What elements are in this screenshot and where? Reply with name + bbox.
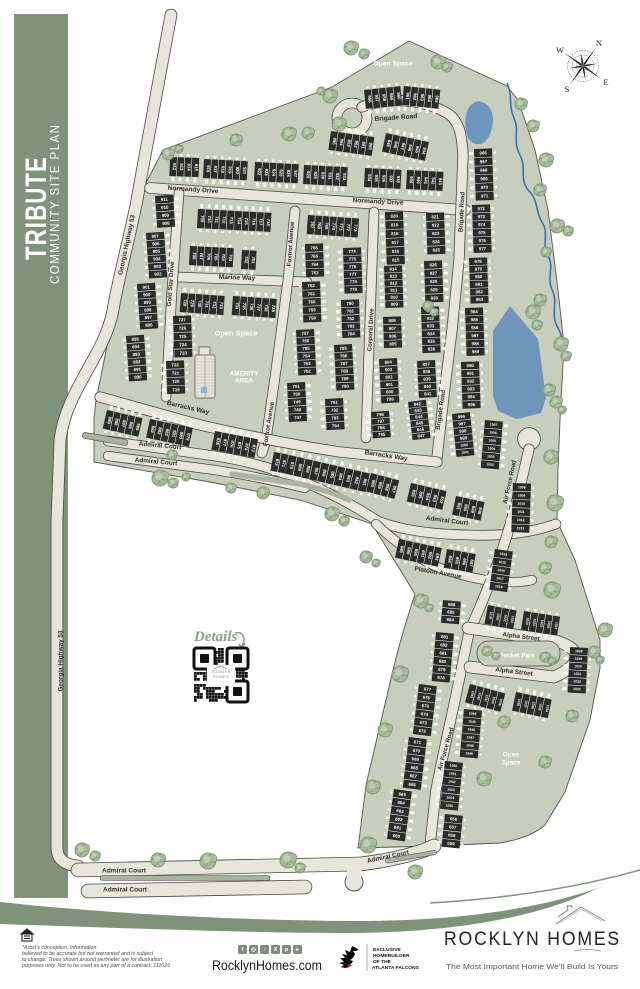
svg-text:994: 994 [467,394,475,399]
svg-text:HOMEBUILDER: HOMEBUILDER [373,953,410,959]
svg-text:976: 976 [479,238,487,243]
svg-text:979: 979 [475,266,483,271]
svg-text:928: 928 [306,171,311,179]
svg-text:973: 973 [478,214,486,219]
svg-text:836: 836 [428,346,436,351]
svg-text:1009: 1009 [518,493,526,497]
svg-text:927: 927 [293,170,298,178]
svg-text:674: 674 [420,711,428,717]
svg-text:730: 730 [197,300,203,308]
svg-text:N: N [596,38,602,48]
svg-text:835: 835 [427,339,435,344]
svg-text:891: 891 [134,367,142,373]
svg-text:929: 929 [313,171,318,179]
svg-text:816: 816 [392,249,400,254]
svg-text:717: 717 [258,218,263,226]
svg-text:725: 725 [179,334,187,339]
svg-text:766: 766 [310,245,318,250]
svg-text:837: 837 [422,362,430,367]
svg-text:670: 670 [412,748,420,754]
svg-text:936: 936 [381,175,386,183]
svg-text:962: 962 [412,93,418,101]
svg-text:965: 965 [434,95,440,103]
svg-text:733: 733 [219,302,225,310]
svg-text:1048: 1048 [466,743,474,748]
svg-text:676: 676 [422,695,430,701]
svg-text:783: 783 [347,324,355,329]
svg-text:1031: 1031 [574,672,582,676]
svg-text:753: 753 [303,361,311,366]
svg-text:722: 722 [171,362,179,367]
svg-text:932: 932 [335,173,340,181]
svg-text:ROCKLYN HOMES: ROCKLYN HOMES [444,928,621,950]
svg-text:894: 894 [132,344,140,350]
svg-text:923: 923 [264,168,269,176]
svg-text:777: 777 [349,272,357,277]
svg-text:Details: Details [193,629,237,645]
svg-text:957: 957 [374,94,380,102]
svg-text:803: 803 [385,367,393,372]
svg-text:906: 906 [152,241,160,247]
svg-text:893: 893 [132,352,140,358]
svg-text:977: 977 [479,246,487,251]
svg-text:747: 747 [294,415,302,420]
svg-text:963: 963 [419,94,425,102]
svg-text:813: 813 [390,274,398,279]
svg-text:782: 782 [347,316,355,321]
svg-text:673: 673 [419,720,427,726]
svg-text:807: 807 [389,326,397,331]
svg-text:Open Space: Open Space [215,329,258,338]
svg-text:1000: 1000 [460,443,468,448]
svg-text:809: 809 [391,302,399,307]
svg-text:770: 770 [331,223,337,231]
svg-text:971: 971 [481,193,489,198]
svg-text:905: 905 [152,249,160,255]
svg-text:W: W [556,45,564,55]
svg-text:986: 986 [471,325,479,330]
svg-text:987: 987 [471,333,479,338]
svg-text:726: 726 [179,326,187,331]
svg-text:801: 801 [386,382,394,387]
svg-text:1053: 1053 [447,787,455,792]
svg-text:AMENITY: AMENITY [230,371,259,378]
svg-text:847: 847 [417,433,425,439]
svg-text:658: 658 [448,832,456,838]
svg-text:969: 969 [480,176,488,181]
svg-text:924: 924 [271,169,276,177]
svg-text:1002: 1002 [486,462,494,467]
svg-text:f: f [242,947,244,953]
svg-text:purposes only. Not to be used: purposes only. Not to be used as any par… [21,963,170,969]
svg-text:983: 983 [476,297,484,302]
svg-text:942: 942 [430,177,435,185]
svg-text:705: 705 [213,253,218,261]
svg-text:752: 752 [303,369,311,374]
svg-text:661: 661 [394,825,403,831]
svg-text:819: 819 [391,222,399,227]
svg-text:749: 749 [293,399,301,404]
svg-text:723: 723 [180,350,188,355]
svg-text:958: 958 [381,94,387,102]
svg-text:781: 781 [347,308,355,313]
svg-text:♪: ♪ [263,947,266,953]
svg-text:1055: 1055 [445,803,453,808]
svg-text:Admiral Court: Admiral Court [103,887,148,894]
svg-text:708: 708 [192,252,197,260]
svg-text:806: 806 [389,334,397,339]
svg-text:904: 904 [153,256,161,262]
svg-text:937: 937 [388,175,393,183]
svg-text:913: 913 [179,163,184,171]
svg-text:970: 970 [481,185,489,190]
svg-text:912: 912 [172,163,177,171]
svg-text:774: 774 [348,249,356,254]
svg-text:815: 815 [392,257,400,262]
svg-text:817: 817 [391,240,399,245]
svg-text:918: 918 [220,166,225,174]
svg-text:828: 828 [430,279,438,284]
svg-text:1003: 1003 [487,454,495,459]
svg-text:731: 731 [204,301,210,309]
svg-text:1049: 1049 [465,751,473,756]
svg-text:792: 792 [331,407,339,412]
svg-text:659: 659 [447,841,455,847]
svg-text:838: 838 [423,369,431,374]
svg-text:940: 940 [416,176,421,184]
svg-text:956: 956 [367,95,373,103]
svg-text:842: 842 [413,401,421,407]
svg-text:810: 810 [390,295,398,300]
svg-text:921: 921 [242,167,247,175]
svg-text:724: 724 [179,342,187,347]
svg-text:678: 678 [437,675,445,681]
svg-text:925: 925 [278,169,283,177]
svg-text:1012: 1012 [517,518,525,522]
svg-text:667: 667 [409,773,417,779]
svg-text:996: 996 [457,414,465,420]
svg-text:914: 914 [186,164,191,172]
svg-text:791: 791 [330,400,338,405]
svg-text:682: 682 [440,642,448,648]
svg-text:728: 728 [182,299,188,307]
svg-text:759: 759 [308,307,316,312]
svg-text:704: 704 [221,254,226,262]
svg-text:802: 802 [385,374,393,379]
svg-text:911: 911 [161,197,169,203]
svg-text:754: 754 [303,353,311,358]
svg-text:1006: 1006 [489,430,497,435]
svg-text:1047: 1047 [467,735,475,740]
svg-text:773: 773 [353,224,359,232]
svg-text:935: 935 [374,174,379,182]
svg-text:1050: 1050 [450,764,458,769]
svg-text:794: 794 [332,423,340,428]
svg-text:982: 982 [475,289,483,294]
svg-text:1032: 1032 [573,679,581,683]
svg-text:992: 992 [467,379,475,384]
svg-text:821: 821 [431,214,439,219]
svg-text:779: 779 [350,287,358,292]
svg-text:916: 916 [206,165,211,173]
svg-text:734: 734 [234,302,240,310]
svg-text:684: 684 [446,617,454,623]
svg-text:907: 907 [151,233,159,239]
svg-text:OF THE: OF THE [373,959,392,965]
svg-text:890: 890 [134,374,142,380]
svg-text:669: 669 [411,756,419,762]
svg-text:903: 903 [154,264,162,270]
svg-text:995: 995 [468,402,476,407]
svg-text:899: 899 [143,300,151,306]
svg-text:X: X [274,947,278,953]
svg-text:732: 732 [211,301,217,309]
svg-text:1044: 1044 [469,711,477,716]
svg-text:833: 833 [427,323,435,328]
svg-text:668: 668 [410,765,418,771]
svg-text:666: 666 [408,782,416,788]
svg-text:961: 961 [405,92,411,100]
svg-text:1007: 1007 [490,422,498,427]
svg-text:915: 915 [194,164,199,172]
svg-text:715: 715 [244,217,249,225]
svg-text:938: 938 [396,176,401,184]
svg-text:900: 900 [143,292,151,298]
svg-text:922: 922 [257,168,262,176]
svg-text:739: 739 [271,305,277,313]
svg-text:1045: 1045 [468,719,476,724]
svg-text:718: 718 [266,219,271,227]
svg-text:829: 829 [430,287,438,292]
svg-text:797: 797 [377,418,385,424]
svg-text:846: 846 [417,426,425,432]
svg-text:993: 993 [467,386,475,391]
svg-text:677: 677 [423,686,431,692]
svg-text:930: 930 [320,172,325,180]
svg-text:706: 706 [206,253,211,261]
svg-text:Pocket Park: Pocket Park [499,653,535,660]
svg-text:657: 657 [449,824,457,830]
svg-text:1008: 1008 [518,485,526,489]
svg-text:799: 799 [386,396,394,401]
svg-text:898: 898 [144,307,152,313]
svg-text:895: 895 [131,336,139,342]
svg-text:840: 840 [424,384,432,389]
svg-text:768: 768 [317,222,323,230]
svg-text:934: 934 [367,174,372,182]
svg-text:762: 762 [307,283,315,288]
svg-text:780: 780 [346,301,354,306]
svg-text:811: 811 [390,288,398,293]
svg-text:711: 711 [214,216,219,224]
svg-text:796: 796 [377,425,385,431]
svg-text:998: 998 [459,428,467,434]
svg-text:990: 990 [466,363,474,368]
svg-text:735: 735 [242,303,248,311]
svg-text:729: 729 [190,300,196,308]
svg-text:S: S [565,84,570,94]
svg-text:720: 720 [172,379,180,384]
svg-text:RocklynHomes.com: RocklynHomes.com [212,957,322,973]
svg-text:985: 985 [471,317,479,322]
svg-text:758: 758 [309,315,317,320]
svg-text:787: 787 [340,361,348,366]
svg-text:737: 737 [256,304,262,312]
svg-text:EXCLUSIVE: EXCLUSIVE [373,947,401,953]
svg-text:784: 784 [347,331,355,336]
svg-text:Space: Space [502,760,521,767]
svg-text:656: 656 [450,816,458,822]
svg-text:707: 707 [199,252,204,260]
svg-text:1005: 1005 [488,438,496,443]
svg-text:675: 675 [421,703,429,709]
svg-text:712: 712 [221,216,226,224]
svg-text:989: 989 [472,349,480,354]
svg-text:E: E [603,77,608,87]
svg-text:►: ► [295,947,300,953]
svg-text:778: 778 [349,279,357,284]
svg-text:738: 738 [263,304,269,312]
svg-text:686: 686 [448,602,456,608]
svg-text:671: 671 [413,739,421,745]
svg-text:999: 999 [460,435,468,441]
svg-text:800: 800 [386,389,394,394]
svg-text:721: 721 [172,371,180,376]
svg-text:756: 756 [302,338,310,343]
svg-text:710: 710 [207,215,212,223]
svg-text:HOMES: HOMES [213,675,229,679]
svg-text:702: 702 [244,256,249,264]
svg-text:908: 908 [162,221,170,227]
svg-text:843: 843 [414,407,422,413]
svg-text:748: 748 [294,407,302,412]
svg-text:765: 765 [311,254,319,259]
svg-text:997: 997 [458,421,466,427]
svg-text:Open: Open [503,752,519,759]
svg-text:926: 926 [286,170,291,178]
svg-text:Marine Way: Marine Way [219,274,256,282]
svg-text:841: 841 [424,391,432,396]
svg-text:1001: 1001 [461,450,469,455]
svg-text:943: 943 [438,178,443,186]
svg-text:974: 974 [478,222,486,227]
svg-text:805: 805 [389,341,397,346]
svg-text:757: 757 [301,331,309,336]
svg-text:736: 736 [249,303,255,311]
svg-text:1010: 1010 [517,502,525,506]
svg-text:685: 685 [447,609,455,615]
svg-text:972: 972 [477,206,485,211]
svg-text:820: 820 [390,213,398,218]
svg-text:917: 917 [213,165,218,173]
svg-text:795: 795 [378,432,386,438]
svg-text:716: 716 [251,218,256,226]
svg-text:Open Space: Open Space [373,61,413,68]
svg-text:808: 808 [388,318,396,323]
svg-text:701: 701 [251,256,256,264]
svg-text:832: 832 [427,316,435,321]
svg-text:ROCKLYN: ROCKLYN [211,670,230,674]
svg-text:793: 793 [331,415,339,420]
svg-text:834: 834 [427,331,435,336]
svg-text:897: 897 [145,315,153,321]
svg-text:772: 772 [346,224,352,232]
svg-text:760: 760 [308,299,316,304]
svg-text:919: 919 [227,166,232,174]
svg-text:920: 920 [235,167,240,175]
svg-text:825: 825 [433,247,441,252]
svg-text:824: 824 [432,239,440,244]
svg-text:978: 978 [474,259,482,264]
svg-text:818: 818 [391,231,399,236]
svg-text:896: 896 [145,322,153,328]
svg-text:789: 789 [341,376,349,381]
svg-text:767: 767 [309,221,315,229]
svg-text:1054: 1054 [446,795,454,800]
svg-text:ATLANTA FALCONS: ATLANTA FALCONS [372,965,420,971]
svg-text:788: 788 [341,368,349,373]
svg-text:703: 703 [228,254,233,262]
svg-text:1029: 1029 [575,657,583,661]
svg-text:AREA: AREA [235,378,253,385]
svg-text:959: 959 [389,93,395,101]
svg-text:764: 764 [311,262,319,267]
svg-text:Admiral Court: Admiral Court [102,868,147,875]
svg-text:939: 939 [409,176,414,184]
svg-text:844: 844 [415,414,423,420]
svg-text:COMMUNITY SITE PLAN: COMMUNITY SITE PLAN [47,124,62,284]
svg-text:1051: 1051 [449,771,457,776]
svg-text:1030: 1030 [574,664,582,668]
svg-text:981: 981 [475,282,483,287]
svg-text:812: 812 [390,281,398,286]
svg-text:822: 822 [432,223,440,228]
svg-text:709: 709 [200,215,205,223]
svg-text:902: 902 [154,271,162,277]
svg-text:826: 826 [429,262,437,267]
svg-text:771: 771 [338,223,344,231]
svg-text:991: 991 [467,371,475,376]
svg-text:681: 681 [439,650,447,656]
svg-text:769: 769 [324,222,330,230]
svg-text:1004: 1004 [488,446,496,451]
svg-text:672: 672 [418,728,426,734]
svg-text:984: 984 [470,309,478,314]
svg-text:790: 790 [341,384,349,389]
svg-text:763: 763 [311,270,319,275]
svg-text:892: 892 [133,359,141,365]
svg-text:714: 714 [237,217,242,225]
svg-text:933: 933 [342,173,347,181]
svg-text:679: 679 [438,667,446,673]
svg-text:727: 727 [178,317,186,322]
svg-text:966: 966 [479,150,487,155]
svg-text:931: 931 [327,172,332,180]
svg-text:980: 980 [475,274,483,279]
svg-text:719: 719 [172,387,180,392]
svg-text:Georgia Highway 53: Georgia Highway 53 [58,630,65,692]
svg-text:785: 785 [339,346,347,351]
svg-text:823: 823 [432,231,440,236]
svg-text:804: 804 [384,360,392,365]
svg-text:1052: 1052 [448,779,456,784]
svg-text:968: 968 [480,168,488,173]
svg-text:845: 845 [416,420,424,426]
svg-text:1046: 1046 [467,727,475,732]
svg-text:830: 830 [431,295,439,300]
svg-text:680: 680 [439,659,447,665]
svg-text:683: 683 [441,634,449,640]
